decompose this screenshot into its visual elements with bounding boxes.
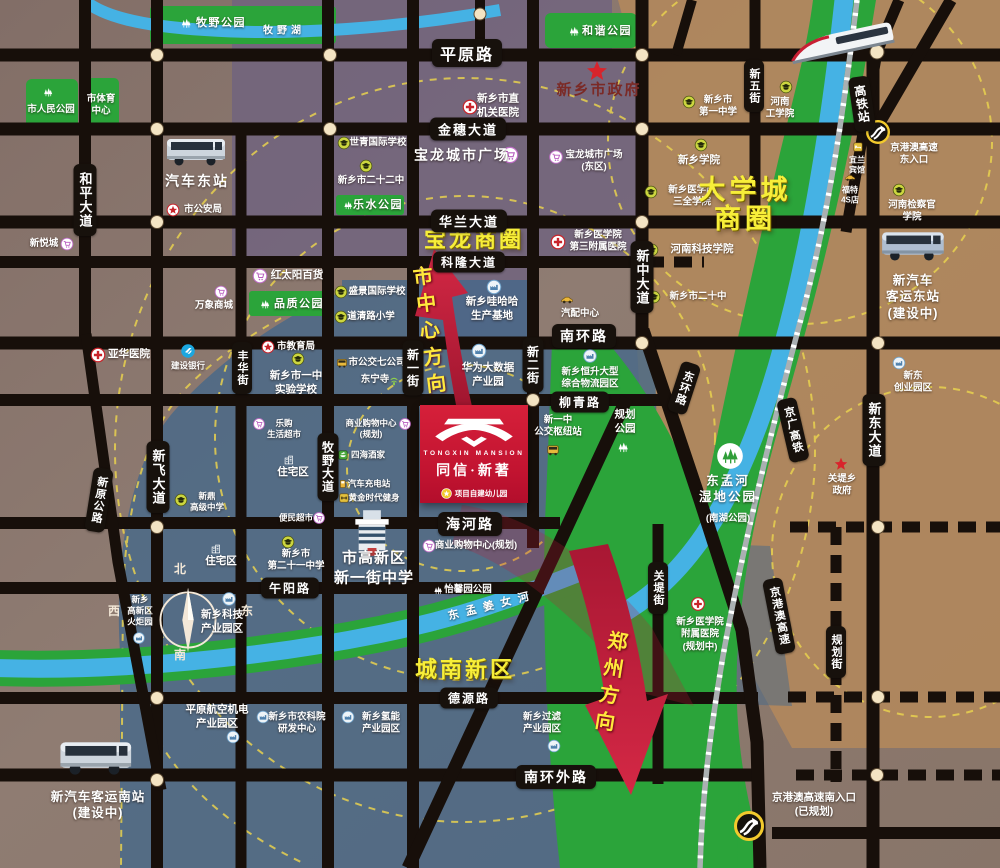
jiguan-hospital-text: 新乡市直: [477, 92, 519, 106]
qiche-dongzhan-new-text: 新汽车: [886, 273, 940, 289]
keji-college-text: 河南科技学院: [671, 243, 734, 257]
wetland-park-text: 东孟河: [699, 473, 757, 489]
home-icon: [283, 454, 296, 467]
bianmin-market: 便民超市: [279, 512, 313, 523]
yixin-park: 怡馨园公园: [444, 584, 492, 596]
hengsheng-logistics-text: 综合物流园区: [561, 379, 618, 391]
guihua-park: 规划公园: [615, 408, 636, 435]
ccb-bank: 建设银行: [171, 360, 205, 371]
location-map: TONGXIN MANSION 同信·新著 项目自建幼儿园 北 南 西 东 牧野…: [0, 0, 1000, 868]
star-icon: [834, 457, 848, 471]
leshui-park: 乐水公园: [353, 198, 403, 212]
guolv-park-text: 新乡过滤: [523, 712, 561, 724]
charge-station-text: 汽车充电站: [348, 478, 391, 489]
bus-image-east-station: [165, 133, 229, 169]
xindong-chuangye-text: 创业园区: [894, 383, 932, 395]
hwy-east-entry-text: 京港澳高速: [890, 143, 938, 155]
jianchaguan-college-text: 河南检察官: [888, 200, 936, 212]
school-icon: [335, 311, 348, 324]
keji-college: 河南科技学院: [671, 243, 734, 257]
gonganju: 市公安局: [184, 204, 222, 216]
xinxiang-college-text: 新乡学院: [678, 154, 720, 168]
huoju-park: 新乡高新区火炬园: [127, 594, 153, 627]
dongning-temple: 东宁寺: [361, 374, 390, 386]
sihai-restaurant-text: 四海酒家: [351, 449, 385, 460]
car-icon: [560, 293, 575, 308]
mall-icon: [549, 150, 563, 164]
no21-school-text: 新乡市: [267, 549, 324, 561]
renmin-park-text: 市人民公园: [27, 104, 75, 116]
yilan-hotel: 宜兰宾馆: [849, 156, 865, 177]
jiaoyuju: 市教育局: [277, 341, 315, 353]
baolong-plaza-text: 宝龙城市广场: [414, 146, 510, 164]
yahua-hospital: 亚华医院: [108, 348, 150, 362]
shangye-haihe-text: 商业购物中心(规划): [435, 540, 517, 552]
city-gov-text: 新乡市政府: [556, 80, 641, 100]
henan-tech-text: 河南: [766, 97, 795, 109]
bus7-company: 市公交七公司: [348, 357, 405, 369]
bank-icon: [181, 344, 196, 359]
chengnan-district: 城南新区: [415, 658, 515, 682]
no22-school: 新乡市二十二中: [338, 175, 405, 187]
keji-park-text: 新乡科技: [201, 608, 243, 622]
huawei: 华为大数据产业园: [462, 361, 515, 388]
road-wuyang: 午阳路: [261, 578, 319, 599]
mall-icon: [313, 512, 325, 524]
qiche-dongzhan-new-text: 客运东站: [886, 289, 940, 305]
daoqing-school-text: 道清路小学: [347, 311, 395, 323]
legou-market-text: 生活超市: [267, 429, 301, 440]
guandi-gov-text: 政府: [828, 486, 857, 498]
road-xiner: 新二街: [523, 338, 544, 393]
qiche-dongzhan-text: 汽车东站: [165, 172, 229, 190]
zhuzhai-south: 住宅区: [205, 555, 237, 569]
hwy-south-entry-text: 京港澳高速南入口: [772, 791, 856, 805]
golden-gym: 黄金时代健身: [348, 492, 399, 503]
qipei-center-text: 汽配中心: [561, 308, 599, 320]
hangkong-park: 平原航空机电产业园区: [186, 703, 249, 730]
hwy-east-entry-text: 东入口: [890, 155, 938, 167]
road-xinwu: 新五街: [744, 60, 764, 112]
muye-lake: 牧野湖: [263, 25, 305, 38]
ford-4s-text: 福特: [841, 186, 859, 196]
qiche-nanzhan: 新汽车客运南站(建设中): [51, 789, 146, 822]
sports-center-text: 中心: [87, 106, 116, 118]
shiqing-school-text: 世青国际学校: [349, 137, 406, 149]
no21-school-text: 第二十一中学: [267, 561, 324, 573]
yixin-park-text: 怡馨园公园: [444, 584, 492, 596]
nongkeyuan-text: 新乡市农科院: [268, 712, 325, 724]
no21-school: 新乡市第二十一中学: [267, 549, 324, 574]
nongkeyuan-text: 研发中心: [268, 724, 325, 736]
yizhong-shiyan-text: 实验学校: [270, 383, 323, 397]
med3-hospital: 新乡医学院第三附属医院: [569, 230, 626, 255]
xinding-school-text: 高级中学: [190, 502, 224, 513]
school-icon: [175, 494, 188, 507]
compass-north-label: 北: [174, 560, 186, 577]
xinding-school: 新鼎高级中学: [190, 491, 224, 513]
jianchaguan-college-text: 学院: [888, 212, 936, 224]
school-icon: [282, 536, 295, 549]
highway-icon: [734, 811, 764, 841]
road-xinfei: 新飞大道: [147, 441, 170, 513]
mall-icon: [399, 418, 411, 430]
project-logo-roof-icon: [432, 412, 516, 448]
med3-hospital-text: 第三附属医院: [569, 242, 626, 254]
qipei-center: 汽配中心: [561, 308, 599, 320]
road-liuqing: 柳青路: [551, 392, 609, 413]
baolong-east-text: 宝龙城市广场: [565, 150, 622, 162]
keji-park: 新乡科技产业园区: [201, 608, 243, 635]
med3-hospital-text: 新乡医学院: [569, 230, 626, 242]
guihua-park-text: 公园: [615, 422, 636, 436]
no20-middle: 新乡市二十中: [669, 291, 726, 303]
bus7-company-text: 市公交七公司: [348, 357, 405, 369]
daxuecheng-circle: 大学城商圈: [699, 176, 792, 234]
road-xindong: 新东大道: [863, 394, 886, 466]
muye-park: 牧野公园: [196, 16, 246, 30]
shangye-upper-text: 商业购物中心: [345, 418, 396, 429]
school-icon: [683, 96, 696, 109]
hospital-icon: [551, 235, 566, 250]
school-icon: [780, 81, 793, 94]
qingneng-park: 新乡氢能产业园区: [362, 712, 400, 737]
qiche-nanzhan-text: 新汽车客运南站: [51, 789, 146, 805]
star-icon: [586, 60, 608, 82]
hospital-icon: [91, 348, 106, 363]
huoju-park-text: 火炬园: [127, 617, 153, 628]
ford-4s-text: 4S店: [841, 196, 859, 206]
mall-icon: [61, 238, 74, 251]
no22-school-text: 新乡市二十二中: [338, 175, 405, 187]
hangkong-park-text: 平原航空机电: [186, 703, 249, 717]
affil-hospital-text: 新乡医学院: [676, 616, 724, 628]
hongtaiyang-text: 红太阳百货: [271, 269, 324, 283]
industry-icon: [133, 632, 145, 644]
leshui-park-text: 乐水公园: [353, 198, 403, 212]
wahaha-text: 生产基地: [466, 309, 519, 323]
road-deyuan: 德源路: [440, 688, 498, 709]
pinzhi-park: 品质公园: [274, 297, 324, 311]
hexie-park: 和谐公园: [582, 24, 632, 38]
guandi-gov: 关堤乡政府: [828, 474, 857, 499]
zhuzhai-north-text: 住宅区: [277, 466, 309, 480]
henan-tech-text: 工学院: [766, 109, 795, 121]
gaoxin-school: 市高新区新一街中学: [334, 549, 414, 588]
road-muye: 牧野大道: [318, 433, 339, 501]
muye-park-text: 牧野公园: [196, 16, 246, 30]
bus-image-south-station: [58, 735, 136, 779]
hexie-park-text: 和谐公园: [582, 24, 632, 38]
guihua-park-text: 规划: [615, 408, 636, 422]
jiaoyuju-text: 市教育局: [277, 341, 315, 353]
baolong-plaza: 宝龙城市广场: [414, 146, 510, 164]
park-icon: [432, 584, 445, 597]
no1-middle-text: 新乡市: [699, 95, 737, 107]
industry-icon: [472, 344, 487, 359]
industry-icon: [342, 711, 355, 724]
guolv-park: 新乡过滤产业园区: [523, 712, 561, 737]
affil-hospital: 新乡医学院附属医院(规划中): [676, 616, 724, 653]
starring-icon: [262, 341, 275, 354]
hangkong-park-text: 产业园区: [186, 717, 249, 731]
legou-market-text: 乐购: [267, 418, 301, 429]
hospital-icon: [463, 100, 478, 115]
yizhong-hub-text: 公交枢纽站: [534, 427, 582, 439]
jianchaguan-college: 河南检察官学院: [888, 200, 936, 225]
qiche-dongzhan: 汽车东站: [165, 172, 229, 190]
road-jinsui: 金穗大道: [430, 118, 506, 141]
road-hualan: 华兰大道: [431, 210, 507, 233]
sports-center: 市体育中心: [87, 94, 116, 119]
road-xinyi: 新一街: [403, 341, 424, 396]
wahaha-text: 新乡哇哈哈: [466, 295, 519, 309]
road-guandi: 关堤街: [648, 562, 668, 614]
compass-west-label: 西: [108, 602, 120, 619]
baolong-east-text: (东区): [565, 162, 622, 174]
wetland-sub: (南湖公园): [706, 513, 750, 525]
project-name-en: TONGXIN MANSION: [424, 450, 525, 457]
gaoxin-school-text: 市高新区: [334, 549, 414, 569]
shangye-upper: 商业购物中心(规划): [345, 418, 396, 440]
home-icon: [210, 543, 223, 556]
xindong-chuangye-text: 新东: [894, 371, 932, 383]
mall-icon: [253, 418, 265, 430]
guolv-park-text: 产业园区: [523, 724, 561, 736]
industry-icon: [583, 349, 597, 363]
shengjing-school: 盛景国际学校: [348, 286, 405, 298]
baolong-east: 宝龙城市广场(东区): [565, 150, 622, 175]
affil-hospital-text: (规划中): [676, 641, 724, 653]
gonganju-text: 市公安局: [184, 204, 222, 216]
charge-station: 汽车充电站: [348, 478, 391, 489]
guandi-gov-text: 关堤乡: [828, 474, 857, 486]
no20-middle-text: 新乡市二十中: [669, 291, 726, 303]
industry-icon: [548, 740, 561, 753]
huoju-park-text: 高新区: [127, 605, 153, 616]
park-icon: [258, 297, 272, 311]
yizhong-shiyan: 新乡市一中实验学校: [270, 369, 323, 396]
hengsheng-logistics-text: 新乡恒升大型: [561, 367, 618, 379]
renmin-park: 市人民公园: [27, 104, 75, 116]
sihai-restaurant: 四海酒家: [351, 449, 385, 460]
dongning-temple-text: 东宁寺: [361, 374, 390, 386]
qiche-nanzhan-text: (建设中): [51, 805, 146, 821]
bianmin-market-text: 便民超市: [279, 512, 313, 523]
wahaha: 新乡哇哈哈生产基地: [466, 295, 519, 322]
industry-icon: [893, 357, 906, 370]
yahua-hospital-text: 亚华医院: [108, 348, 150, 362]
yizhong-hub-text: 新一中: [534, 415, 582, 427]
yizhong-shiyan-text: 新乡市一中: [270, 369, 323, 383]
road-guihua: 规划街: [826, 626, 846, 678]
road-nanhuan: 南环路: [552, 324, 616, 348]
mall-icon: [423, 540, 436, 553]
road-xinzhong: 新中大道: [631, 241, 654, 313]
school-icon: [645, 186, 658, 199]
food-icon: [337, 449, 349, 461]
sports-center-text: 市体育: [87, 94, 116, 106]
compass-south-label: 南: [174, 646, 186, 663]
affil-hospital-text: 附属医院: [676, 629, 724, 641]
hotel-icon: [852, 141, 864, 153]
huoju-park-text: 新乡: [127, 594, 153, 605]
huawei-text: 华为大数据: [462, 361, 515, 375]
school-icon: [893, 184, 906, 197]
school-icon: [335, 286, 348, 299]
road-nanhuanwai: 南环外路: [516, 765, 596, 789]
shengjing-school-text: 盛景国际学校: [348, 286, 405, 298]
gaoxin-school-text: 新一街中学: [334, 568, 414, 588]
hwy-south-entry: 京港澳高速南入口(已规划): [772, 791, 856, 818]
daxuecheng-circle-text: 商圈: [699, 205, 792, 234]
shangye-haihe: 商业购物中心(规划): [435, 540, 517, 552]
muye-lake-text: 牧野湖: [263, 25, 305, 38]
wetland-icon: [717, 443, 744, 470]
hwy-south-entry-text: (已规划): [772, 805, 856, 819]
city-gov: 新乡市政府: [556, 80, 641, 100]
school-icon: [292, 353, 305, 366]
qingneng-park-text: 产业园区: [362, 724, 400, 736]
road-fenghua: 丰华街: [232, 342, 252, 394]
bus-icon: [336, 357, 349, 370]
henan-tech: 河南工学院: [766, 97, 795, 122]
industry-icon: [222, 592, 236, 606]
daxuecheng-circle-text: 大学城: [699, 176, 792, 205]
hwy-east-entry: 京港澳高速东入口: [890, 143, 938, 168]
road-pingyuan: 平原路: [432, 39, 502, 67]
qiche-dongzhan-new: 新汽车客运东站(建设中): [886, 273, 940, 322]
golden-gym-text: 黄金时代健身: [348, 492, 399, 503]
kindergarten-star-icon: [441, 488, 452, 499]
yilan-hotel-text: 宜兰: [849, 156, 865, 166]
road-kelong: 科隆大道: [433, 252, 505, 273]
industry-icon: [227, 731, 240, 744]
park-icon: [567, 24, 582, 39]
road-haihe: 海河路: [438, 512, 502, 536]
bus-image-new-east-station: [880, 226, 948, 264]
huawei-text: 产业园: [462, 375, 515, 389]
xinyuecheng: 新悦城: [30, 238, 59, 250]
wanxiang-mall: 万象商城: [195, 300, 233, 312]
nongkeyuan: 新乡市农科院研发中心: [268, 712, 325, 737]
chengnan-district-text: 城南新区: [415, 658, 515, 682]
wetland-park-text: 湿地公园: [699, 489, 757, 505]
park-icon: [615, 439, 631, 455]
keji-park-text: 产业园区: [201, 622, 243, 636]
legou-market: 乐购生活超市: [267, 418, 301, 440]
ccb-bank-text: 建设银行: [171, 360, 205, 371]
school-icon: [360, 160, 373, 173]
school-icon: [695, 139, 708, 152]
hengsheng-logistics: 新乡恒升大型综合物流园区: [561, 367, 618, 392]
mall-icon: [215, 286, 228, 299]
yilan-hotel-text: 宾馆: [849, 166, 865, 176]
zhuzhai-north: 住宅区: [277, 466, 309, 480]
park-icon: [41, 85, 55, 99]
yizhong-hub: 新一中公交枢纽站: [534, 415, 582, 440]
wanxiang-mall-text: 万象商城: [195, 300, 233, 312]
hospital-icon: [691, 597, 705, 611]
wetland-park: 东孟河湿地公园: [699, 473, 757, 506]
project-name-cn: 同信·新著: [436, 460, 512, 480]
project-note: 项目自建幼儿园: [455, 488, 508, 499]
qingneng-park-text: 新乡氢能: [362, 712, 400, 724]
xinyuecheng-text: 新悦城: [30, 238, 59, 250]
xindong-chuangye: 新东创业园区: [894, 371, 932, 396]
starring-icon: [167, 204, 180, 217]
xinxiang-college: 新乡学院: [678, 154, 720, 168]
pinzhi-park-text: 品质公园: [274, 297, 324, 311]
ford-4s: 福特4S店: [841, 186, 859, 207]
xinding-school-text: 新鼎: [190, 491, 224, 502]
shangye-upper-text: (规划): [345, 429, 396, 440]
daoqing-school: 道清路小学: [347, 311, 395, 323]
park-icon: [179, 16, 194, 31]
mall-icon: [253, 269, 268, 284]
project-marker: TONGXIN MANSION 同信·新著 项目自建幼儿园: [420, 405, 528, 503]
wetland-sub-text: (南湖公园): [706, 513, 750, 525]
shiqing-school: 世青国际学校: [349, 137, 406, 149]
no1-middle: 新乡市第一中学: [699, 95, 737, 120]
industry-icon: [487, 280, 502, 295]
no1-middle-text: 第一中学: [699, 107, 737, 119]
bus-icon: [546, 443, 561, 458]
jiguan-hospital: 新乡市直机关医院: [477, 92, 519, 119]
qiche-dongzhan-new-text: (建设中): [886, 305, 940, 321]
zhuzhai-south-text: 住宅区: [205, 555, 237, 569]
road-heping: 和平大道: [74, 164, 97, 236]
hongtaiyang: 红太阳百货: [271, 269, 324, 283]
